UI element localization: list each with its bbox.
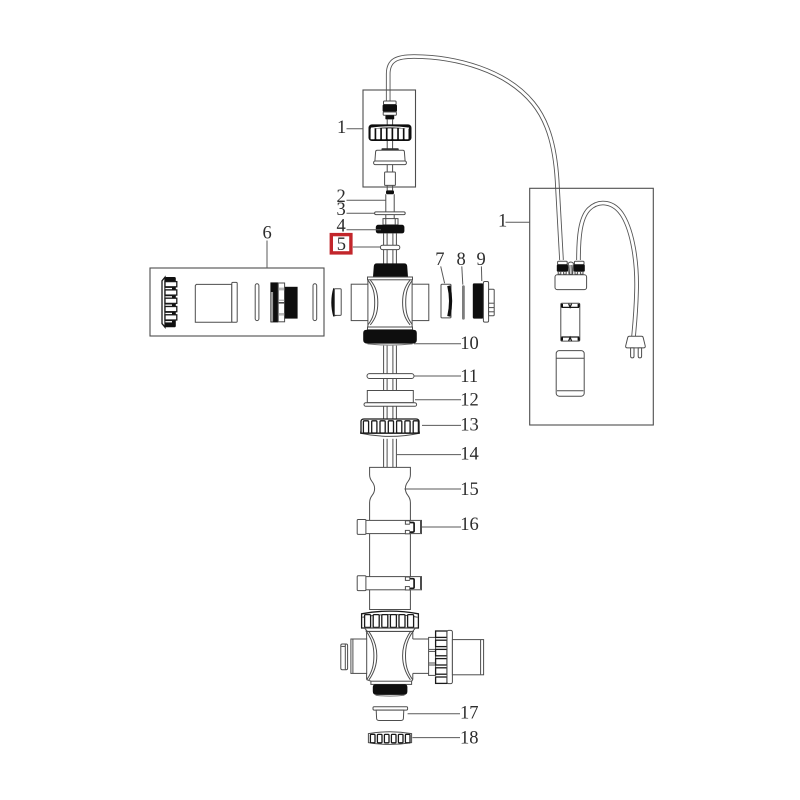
svg-text:1: 1 — [337, 118, 346, 138]
svg-text:15: 15 — [460, 480, 479, 500]
svg-text:5: 5 — [337, 235, 346, 255]
svg-text:13: 13 — [460, 416, 479, 436]
svg-text:8: 8 — [457, 250, 466, 270]
svg-text:7: 7 — [435, 250, 444, 270]
svg-text:12: 12 — [460, 391, 479, 411]
svg-text:16: 16 — [460, 515, 479, 535]
svg-text:14: 14 — [460, 445, 479, 465]
svg-text:1: 1 — [498, 212, 507, 232]
svg-text:10: 10 — [460, 334, 479, 354]
svg-text:11: 11 — [460, 367, 478, 387]
svg-text:18: 18 — [460, 729, 479, 749]
svg-text:17: 17 — [460, 704, 479, 724]
